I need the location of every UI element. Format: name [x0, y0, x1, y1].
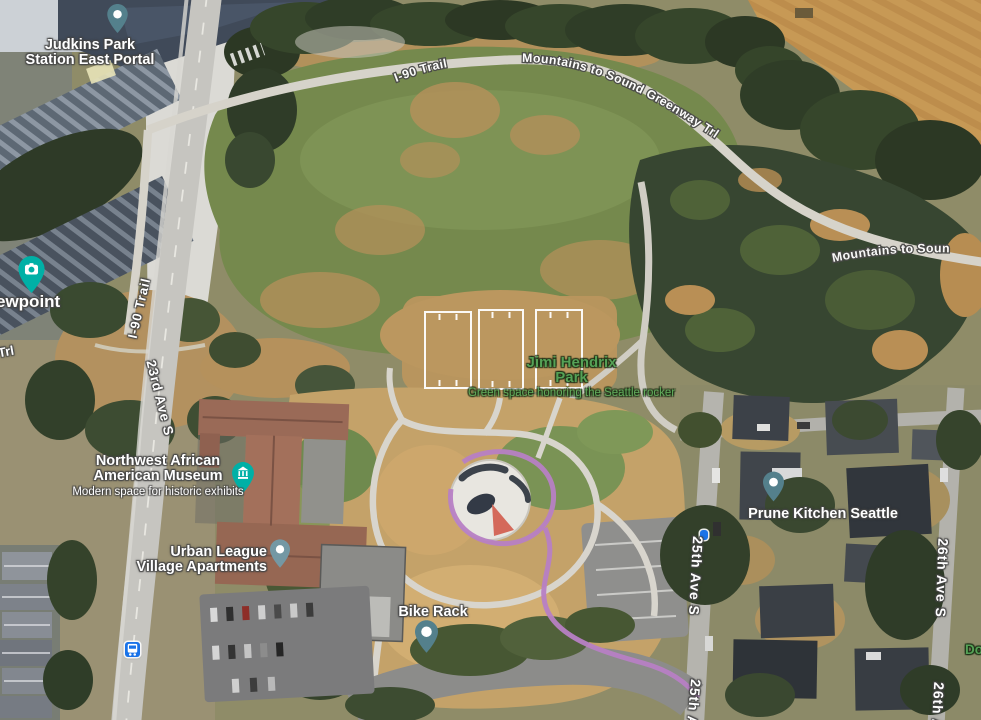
apartments-label-line1: Urban League	[170, 544, 267, 560]
tree-canopy	[740, 225, 820, 275]
station-label-line1: Judkins Park	[45, 37, 135, 53]
trail-label-trl: Trl	[0, 343, 15, 361]
museum-label-line2: American Museum	[94, 468, 223, 484]
tree-canopy	[670, 180, 730, 220]
apartments-map-pin[interactable]	[270, 539, 290, 568]
restaurant-map-pin[interactable]	[763, 471, 784, 502]
house-roof	[846, 464, 932, 538]
station-label-line2: Station East Portal	[26, 52, 155, 68]
parking-lot	[199, 586, 374, 703]
street-label-26th-bottom-text: 26th A	[929, 682, 947, 720]
street-label-26th-text: 26th Ave S	[933, 538, 952, 618]
goal-mark	[550, 312, 569, 318]
park-label-line2: Park	[555, 369, 588, 386]
trail-label-trl-text: Trl	[0, 343, 15, 361]
viewpoint-label-text: ewpoint	[0, 292, 60, 311]
dirt-patch	[335, 205, 425, 255]
dirt-patch	[400, 142, 460, 178]
bike-rack-map-pin[interactable]	[415, 620, 438, 653]
street-label-25th-bottom-text: 25th A	[684, 679, 704, 720]
bike-rack-label[interactable]: Bike Rack	[383, 605, 483, 620]
dirt-patch	[665, 285, 715, 315]
street-label-26th-ave: 26th Ave S	[933, 538, 952, 618]
goal-mark	[492, 312, 511, 318]
tree-canopy	[225, 132, 275, 188]
goal-mark	[439, 314, 458, 320]
museum-label-subtitle: Modern space for historic exhibits	[38, 486, 278, 498]
park-label-partial-text: Do	[965, 642, 981, 657]
dirt-patch	[410, 82, 500, 138]
tree-canopy	[25, 360, 95, 440]
station-map-pin[interactable]	[107, 4, 128, 33]
house-roof	[759, 584, 835, 639]
viewpoint-camera-pin[interactable]	[18, 256, 45, 293]
house-roof	[732, 395, 790, 441]
park-label-subtitle: Green space honoring the Seattle rocker	[454, 387, 689, 399]
tree-canopy	[832, 400, 888, 440]
museum-label-line1: Northwest African	[96, 453, 220, 469]
tree-canopy	[209, 332, 261, 368]
park-label[interactable]: Jimi Hendrix Park Green space honoring t…	[454, 355, 689, 399]
dirt-patch	[260, 272, 380, 328]
street-label-26th-ave-bottom: 26th A	[929, 682, 947, 720]
satellite-map-canvas[interactable]: I-90 Trail Mountains to Sound Greenway T…	[0, 0, 981, 720]
bus-stop-icon[interactable]	[125, 642, 140, 657]
station-label[interactable]: Judkins Park Station East Portal	[10, 38, 170, 68]
parking-lot	[199, 586, 374, 703]
tree-canopy	[43, 650, 93, 710]
bike-rack-label-text: Bike Rack	[398, 604, 467, 620]
museum-label[interactable]: Northwest African American Museum Modern…	[38, 454, 278, 498]
tree-canopy	[678, 412, 722, 448]
viewpoint-label[interactable]: ewpoint	[0, 292, 60, 312]
apartments-label[interactable]: Urban League Village Apartments	[117, 545, 267, 575]
restaurant-label-text: Prune Kitchen Seattle	[748, 506, 898, 522]
tree-canopy	[50, 282, 130, 338]
tree-canopy	[47, 540, 97, 620]
park-label-partial[interactable]: Do	[965, 642, 981, 657]
courtyard	[301, 439, 346, 524]
dirt-patch	[510, 115, 580, 155]
restaurant-label[interactable]: Prune Kitchen Seattle	[748, 507, 898, 522]
apartments-label-line2: Village Apartments	[136, 559, 267, 575]
tree-canopy	[825, 270, 915, 330]
dirt-patch	[872, 330, 928, 370]
lawn-patch	[577, 410, 653, 454]
street-label-25th-ave-bottom: 25th A	[684, 679, 704, 720]
tree-canopy	[725, 673, 795, 717]
trail-junction	[295, 26, 405, 58]
vehicle	[795, 8, 813, 18]
